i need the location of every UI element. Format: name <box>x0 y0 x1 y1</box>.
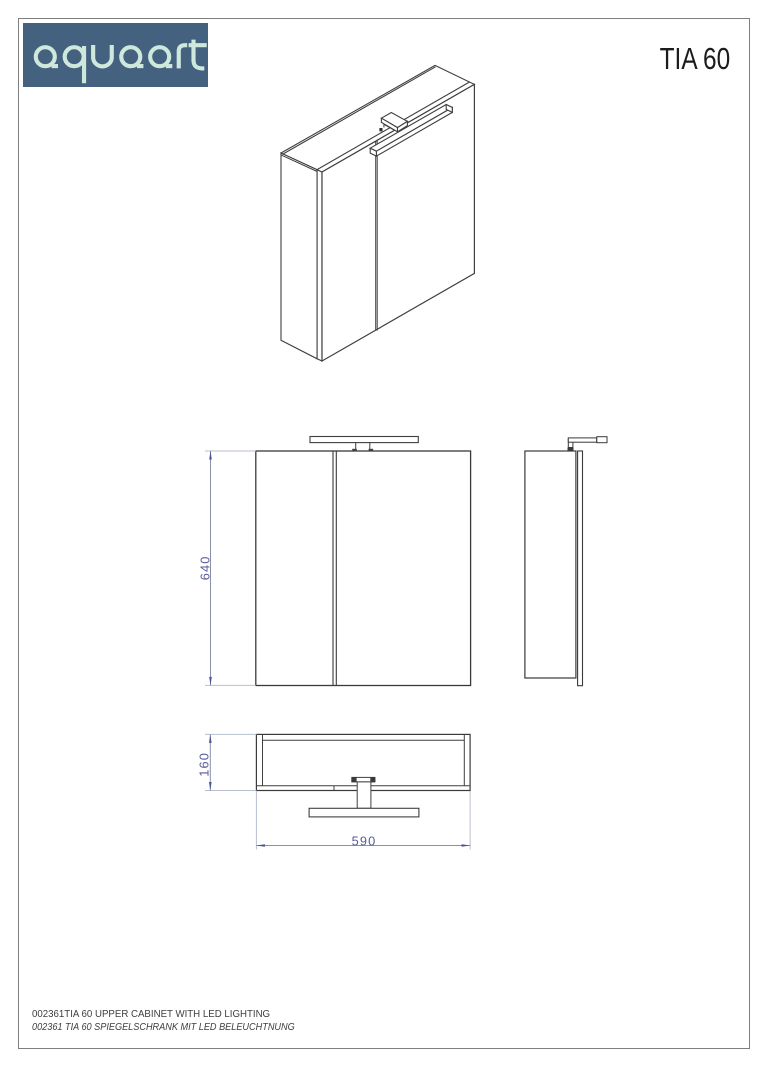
svg-text:160: 160 <box>197 752 212 777</box>
svg-text:590: 590 <box>352 833 377 848</box>
svg-text:640: 640 <box>198 556 213 581</box>
